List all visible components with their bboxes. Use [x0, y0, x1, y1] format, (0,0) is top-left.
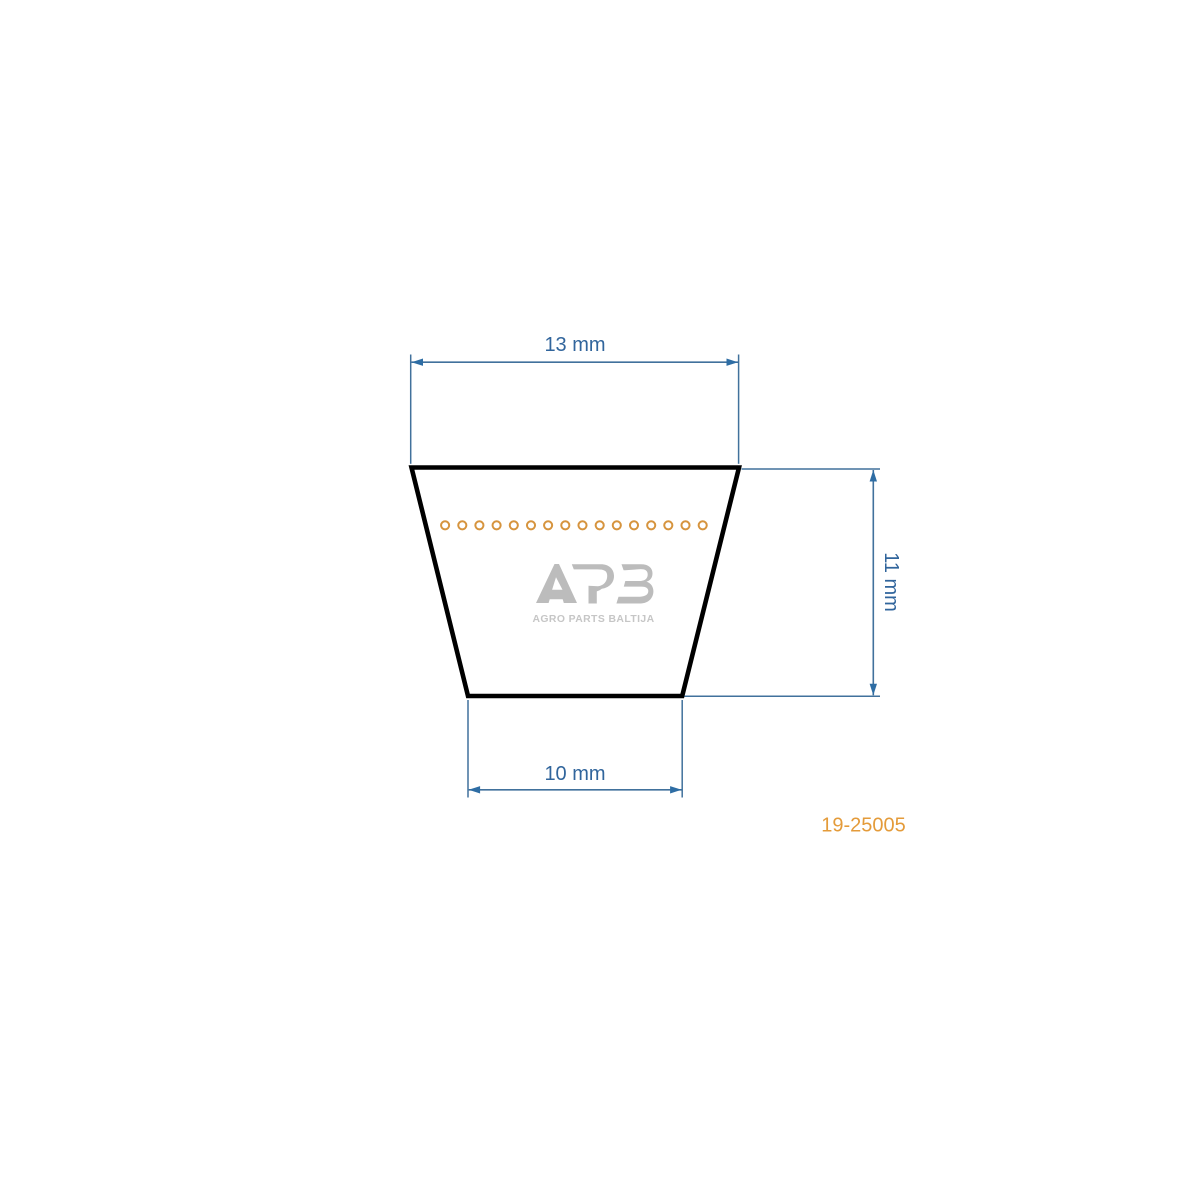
svg-text:11 mm: 11 mm	[880, 552, 902, 612]
svg-text:13 mm: 13 mm	[544, 334, 605, 356]
svg-text:AGRO PARTS BALTIJA: AGRO PARTS BALTIJA	[532, 614, 654, 625]
svg-text:19-25005: 19-25005	[821, 815, 906, 837]
svg-text:10 mm: 10 mm	[544, 763, 605, 785]
